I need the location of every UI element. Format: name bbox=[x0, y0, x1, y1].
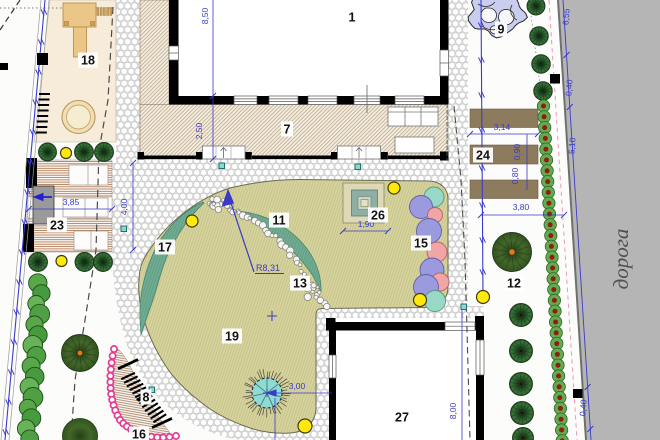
svg-text:8: 8 bbox=[143, 391, 150, 405]
svg-text:1: 1 bbox=[349, 11, 356, 25]
svg-text:5,10: 5,10 bbox=[566, 137, 577, 154]
svg-text:3,14: 3,14 bbox=[494, 122, 511, 132]
svg-text:8,50: 8,50 bbox=[200, 7, 210, 24]
svg-text:26: 26 bbox=[371, 209, 385, 223]
svg-text:0,40: 0,40 bbox=[577, 399, 588, 416]
svg-text:24: 24 bbox=[476, 149, 490, 163]
svg-text:9: 9 bbox=[498, 23, 505, 37]
svg-text:13: 13 bbox=[293, 277, 307, 291]
svg-text:15: 15 bbox=[414, 237, 428, 251]
svg-text:3,80: 3,80 bbox=[513, 202, 530, 212]
svg-text:0,90: 0,90 bbox=[512, 143, 522, 160]
svg-text:23: 23 bbox=[50, 219, 64, 233]
svg-text:11: 11 bbox=[272, 214, 285, 228]
svg-text:2,50: 2,50 bbox=[194, 122, 204, 139]
svg-text:12: 12 bbox=[507, 277, 521, 291]
svg-text:17: 17 bbox=[158, 241, 172, 255]
svg-text:18: 18 bbox=[81, 54, 95, 68]
svg-text:6,55: 6,55 bbox=[560, 8, 571, 25]
svg-text:27: 27 bbox=[395, 411, 409, 425]
svg-text:0,40: 0,40 bbox=[563, 79, 574, 96]
svg-text:19: 19 bbox=[225, 330, 239, 344]
svg-text:8,00: 8,00 bbox=[448, 402, 458, 419]
svg-text:R8,31: R8,31 bbox=[256, 263, 280, 273]
svg-text:3,85: 3,85 bbox=[63, 197, 80, 207]
svg-text:16: 16 bbox=[132, 428, 146, 440]
svg-text:4,00: 4,00 bbox=[119, 198, 129, 215]
svg-text:дорога: дорога bbox=[609, 229, 633, 290]
svg-text:3,00: 3,00 bbox=[289, 381, 306, 391]
svg-text:0,80: 0,80 bbox=[510, 167, 520, 184]
svg-text:7: 7 bbox=[284, 123, 291, 137]
